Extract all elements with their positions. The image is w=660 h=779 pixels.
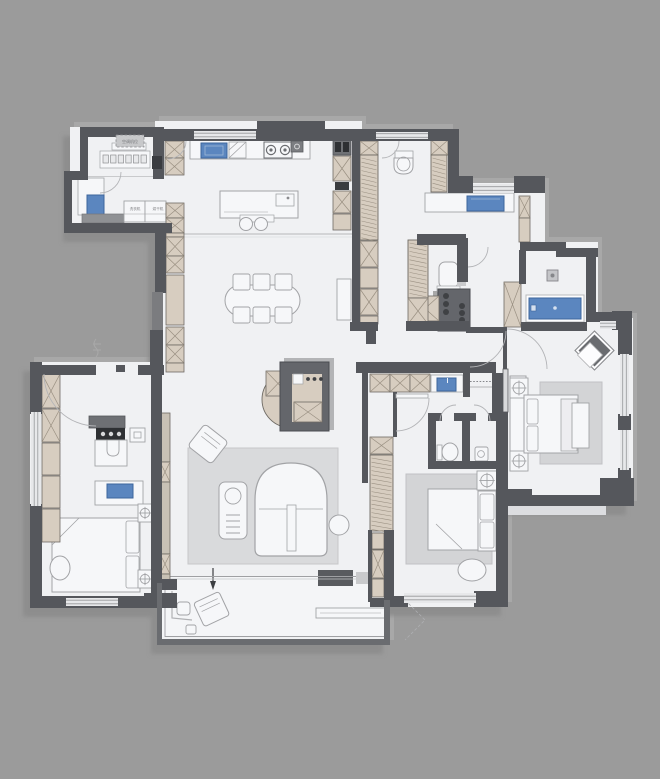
svg-text:烘干机: 烘干机 xyxy=(153,206,164,211)
svg-text:空调机位: 空调机位 xyxy=(122,138,138,144)
svg-text:洗衣机: 洗衣机 xyxy=(130,206,141,211)
